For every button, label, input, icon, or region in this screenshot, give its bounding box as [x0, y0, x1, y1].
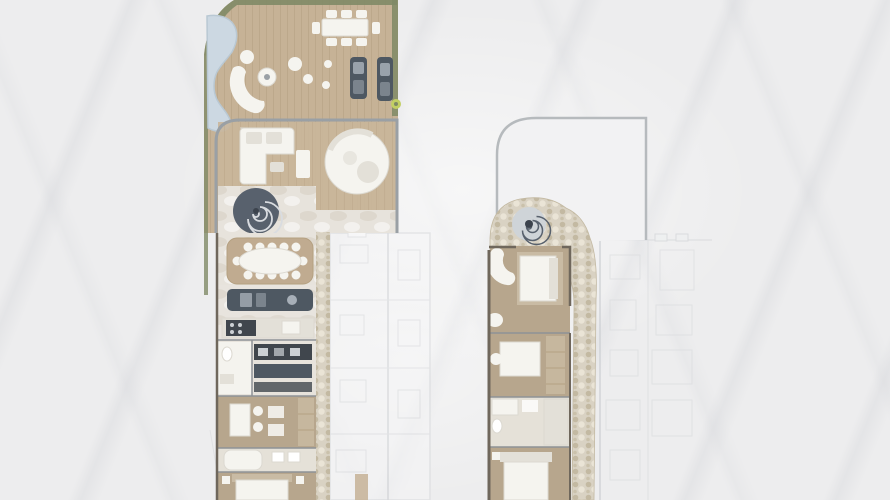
bed-2 [504, 462, 548, 500]
shower [544, 399, 568, 445]
bedroom-suite [487, 246, 570, 500]
toilet [492, 419, 502, 433]
ghost-unit-right [600, 234, 712, 500]
neighbor-balcony-strip [355, 474, 368, 500]
round-sofa [325, 130, 389, 194]
dining-table [233, 243, 308, 280]
floorplan-scene [0, 0, 890, 500]
kitchen-island [227, 289, 313, 311]
lower-body [217, 232, 330, 500]
bathroom-2 [218, 448, 318, 472]
right-unit-plan [487, 118, 646, 500]
closet-cabinets [546, 336, 565, 394]
kitchen-counter [222, 318, 314, 338]
bedroom-1 [218, 472, 318, 500]
floorplan-canvas [0, 0, 890, 500]
vanity-sink [492, 399, 518, 415]
bathroom-1 [218, 342, 252, 394]
wardrobe-shelving [254, 344, 312, 392]
bathtub [224, 450, 262, 470]
stone-wall [316, 232, 330, 500]
bed [236, 480, 288, 500]
bed [517, 252, 563, 305]
living-room [216, 120, 397, 236]
